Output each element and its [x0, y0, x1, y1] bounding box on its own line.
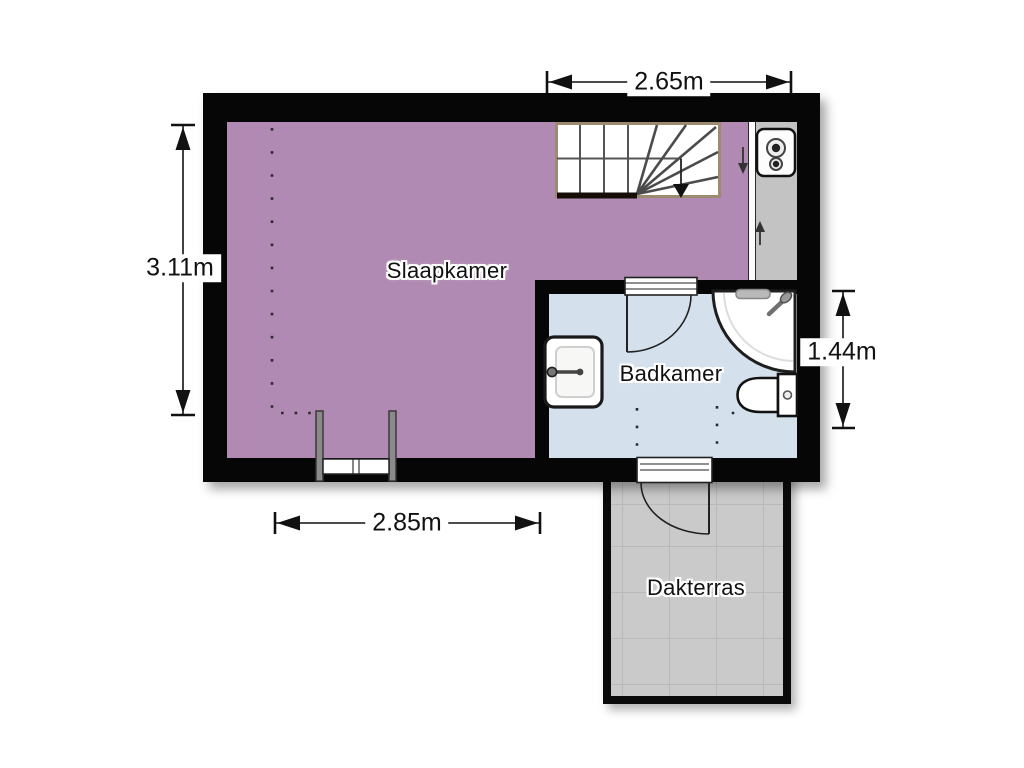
- dimension-left-label: 3.11m: [139, 254, 221, 282]
- dimension-bottom-label: 2.85m: [365, 509, 448, 537]
- floor-plan: Slaapkamer Badkamer Dakterras 2.65m 3.11…: [0, 0, 1024, 768]
- room-bedroom-lower: [227, 280, 535, 458]
- room-label-dakterras: Dakterras: [647, 575, 745, 601]
- room-label-slaapkamer: Slaapkamer: [387, 258, 507, 284]
- dimension-top-label: 2.65m: [627, 68, 710, 96]
- room-closet: [756, 122, 797, 280]
- room-bedroom: [227, 122, 748, 280]
- dimension-right-label: 1.44m: [800, 338, 883, 366]
- closet-partition: [748, 122, 756, 280]
- room-label-badkamer: Badkamer: [620, 361, 723, 387]
